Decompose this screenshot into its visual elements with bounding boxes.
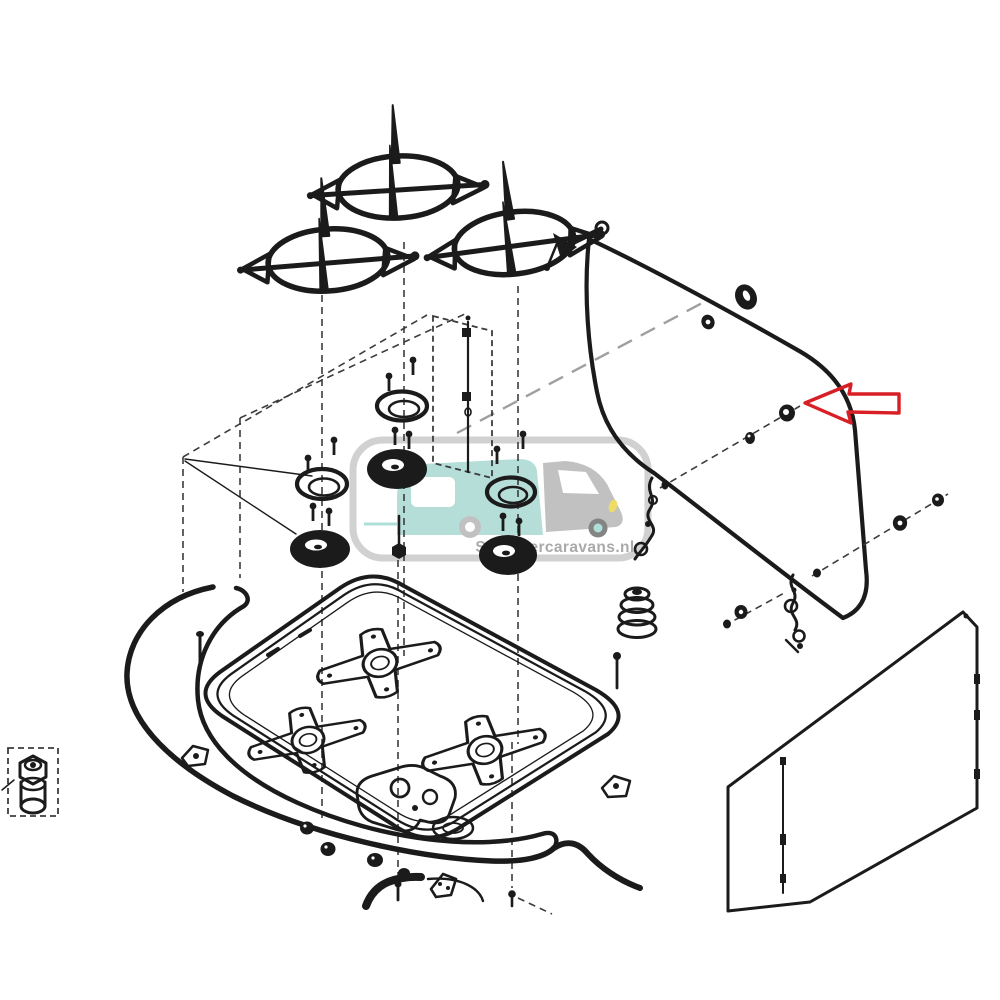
burner-cap-left <box>290 530 350 568</box>
pan-supports <box>231 100 609 297</box>
tray-rim-outer <box>205 576 618 837</box>
pan-support-right <box>413 150 608 284</box>
screw-guide-line <box>812 494 948 576</box>
burner-cap-middle <box>367 449 427 489</box>
lid-washer-dark <box>932 494 944 507</box>
pan-support-middle <box>302 100 491 222</box>
exploded-parts-diagram: Schippercaravans.nl <box>0 0 1000 1000</box>
watermark-vehicle-icon <box>397 459 623 538</box>
lid-outline <box>587 239 867 618</box>
gas-jet-column <box>433 316 492 479</box>
diagram-canvas: Schippercaravans.nl <box>0 0 1000 1000</box>
burner-ring-middle <box>377 392 427 421</box>
lid-washer-small <box>699 313 716 332</box>
grommet-guide-line <box>457 301 706 433</box>
lower-burner-partial <box>366 868 483 906</box>
guide-line <box>518 898 552 914</box>
burner-cap-right <box>479 535 537 575</box>
hob-tray <box>182 576 630 839</box>
construction-lines <box>183 242 706 914</box>
highlighted-fastener <box>779 405 795 422</box>
screw-guide-line <box>724 592 786 626</box>
rubber-bellows <box>618 588 656 638</box>
lid-grommet <box>731 281 761 313</box>
back-panel <box>728 612 980 911</box>
screw-guide-line <box>660 406 800 488</box>
lid-screw <box>745 432 755 444</box>
burner-ring-left <box>297 469 347 499</box>
gas-connector <box>2 748 58 816</box>
